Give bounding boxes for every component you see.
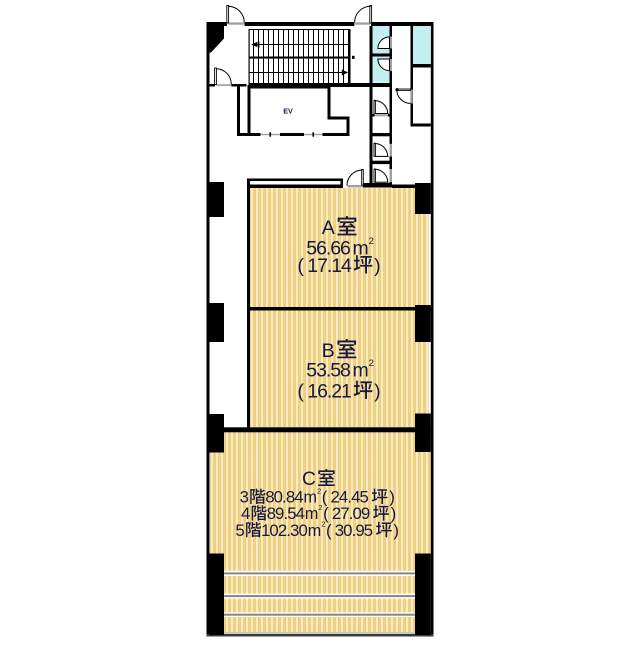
svg-text:17.14: 17.14	[307, 255, 352, 277]
svg-text:(: (	[326, 521, 332, 540]
svg-text:30.95: 30.95	[335, 521, 373, 540]
svg-text:102.30: 102.30	[261, 521, 307, 540]
svg-text:(: (	[297, 380, 304, 402]
svg-text:C: C	[302, 469, 316, 490]
svg-text:m: m	[305, 505, 318, 523]
svg-text:m: m	[304, 489, 317, 507]
svg-text:2: 2	[321, 520, 325, 529]
svg-text:m: m	[308, 522, 321, 540]
svg-text:): )	[393, 521, 399, 540]
svg-text:16.21: 16.21	[307, 380, 351, 402]
svg-text:5: 5	[235, 521, 244, 540]
svg-text:53.58: 53.58	[306, 359, 350, 381]
svg-text:2: 2	[369, 236, 374, 247]
svg-text:2: 2	[369, 358, 374, 369]
svg-text:): )	[374, 255, 381, 277]
svg-text:EV: EV	[283, 107, 293, 116]
svg-text:A: A	[322, 217, 336, 239]
svg-text:m: m	[352, 359, 368, 381]
svg-text:(: (	[297, 255, 304, 277]
svg-text:): )	[374, 380, 381, 402]
svg-text:2: 2	[318, 503, 322, 512]
svg-text:2: 2	[317, 486, 321, 495]
